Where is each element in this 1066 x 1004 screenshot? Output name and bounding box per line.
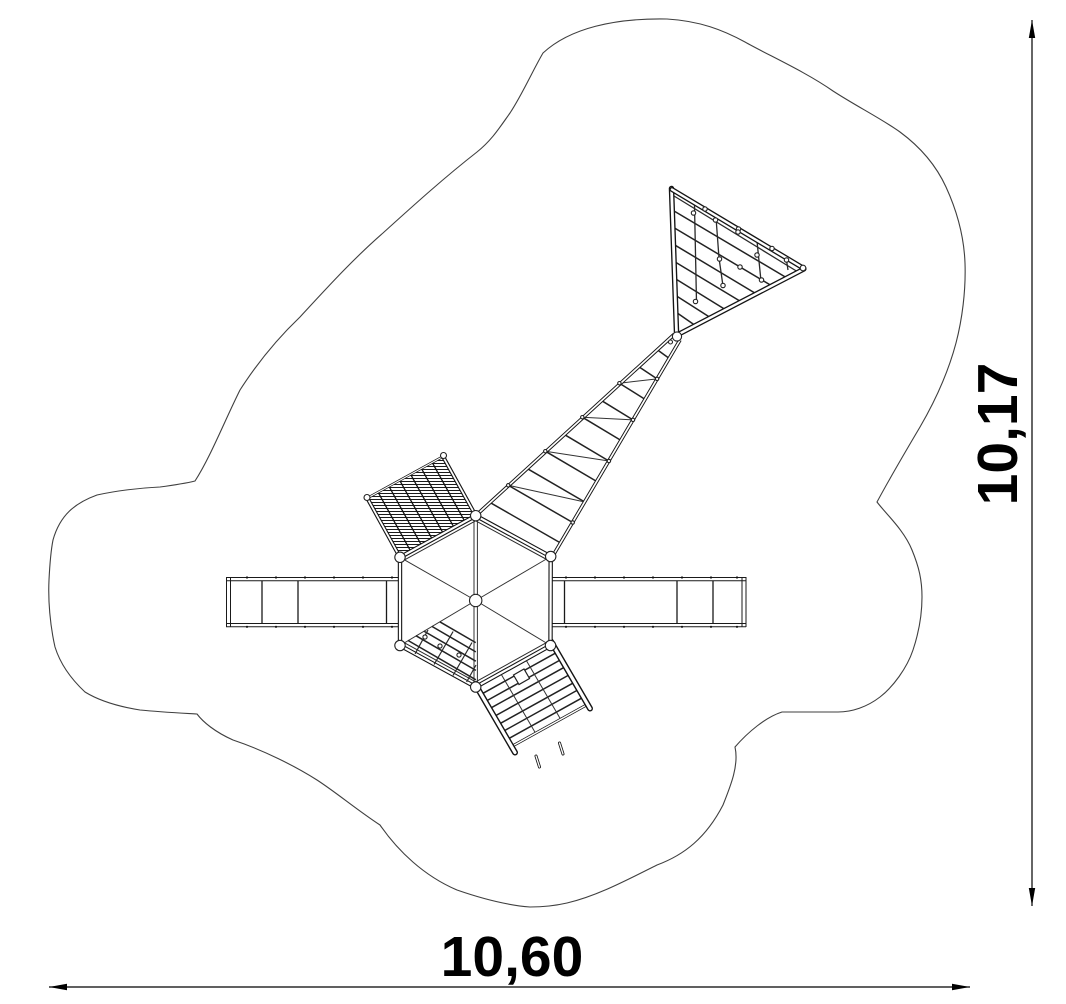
- bridge-rail-ticks: [565, 576, 738, 628]
- width-dimension-label: 10,60: [441, 925, 584, 989]
- center-post: [470, 594, 482, 606]
- right-balance-bridge: [551, 576, 746, 628]
- interior-net: [408, 622, 476, 682]
- height-dimension-label: 10,17: [966, 363, 1030, 506]
- arrow-down-icon: [1029, 888, 1035, 906]
- arrow-left-icon: [49, 984, 67, 990]
- width-dimension: 10,60: [49, 925, 970, 990]
- exit-net-ramp: [476, 642, 590, 768]
- bridge-rail-ticks: [246, 576, 393, 628]
- triangle-climbing-net: [669, 189, 806, 345]
- arrow-right-icon: [952, 984, 970, 990]
- safety-zone-outline: [49, 19, 965, 907]
- drawing-canvas: 10,60 10,17: [0, 0, 1066, 1004]
- apex-ring: [672, 332, 681, 341]
- ramp-hatch-plate: [514, 669, 530, 685]
- rope-net-bridge: [478, 335, 681, 557]
- zone-outline-path: [49, 19, 965, 907]
- apex-knot: [669, 340, 673, 344]
- playground-plan-drawing: 10,60 10,17: [0, 0, 1066, 1004]
- arrow-up-icon: [1029, 20, 1035, 38]
- left-balance-bridge: [226, 576, 400, 628]
- climbing-grid-ramp: [364, 453, 476, 558]
- height-dimension: 10,17: [966, 20, 1035, 906]
